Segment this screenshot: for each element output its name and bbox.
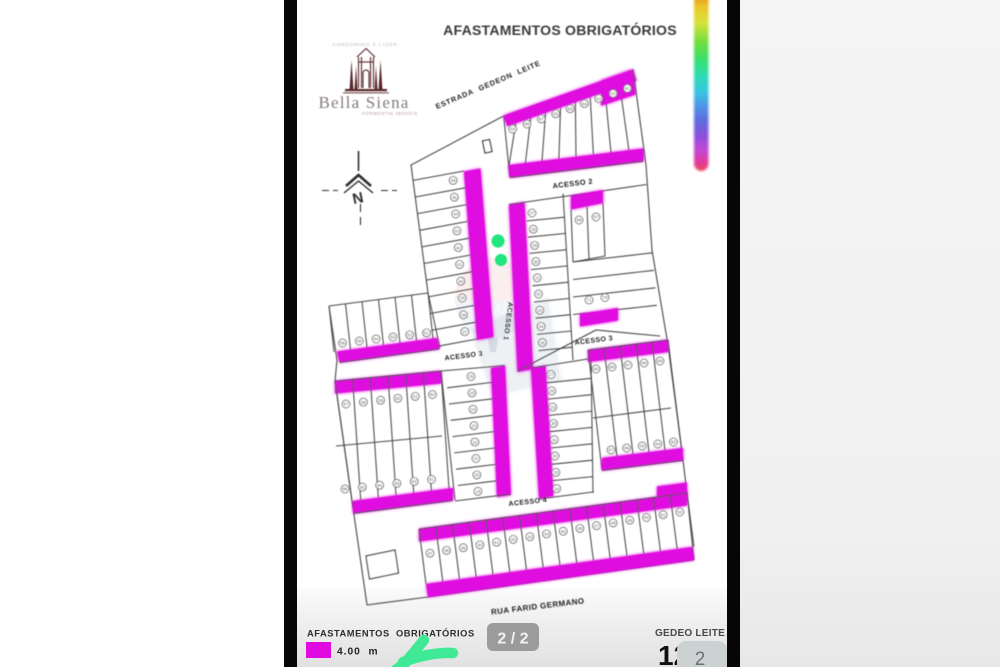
svg-text:45: 45 xyxy=(452,195,457,200)
svg-text:34: 34 xyxy=(554,486,559,491)
svg-text:27: 27 xyxy=(530,211,535,216)
svg-text:30: 30 xyxy=(533,259,538,264)
svg-text:46: 46 xyxy=(577,526,582,531)
svg-text:69: 69 xyxy=(658,359,663,364)
svg-text:62: 62 xyxy=(430,392,435,397)
svg-text:44: 44 xyxy=(544,532,549,537)
svg-text:41: 41 xyxy=(494,540,499,545)
svg-text:43: 43 xyxy=(527,534,532,539)
svg-text:52: 52 xyxy=(407,333,412,338)
svg-text:39: 39 xyxy=(460,296,465,301)
svg-text:67: 67 xyxy=(626,363,631,368)
svg-text:20: 20 xyxy=(474,473,479,478)
svg-text:71: 71 xyxy=(587,298,592,303)
svg-text:28: 28 xyxy=(549,389,554,394)
svg-text:AFASTAMENTOS OBRIGATÓRIOS: AFASTAMENTOS OBRIGATÓRIOS xyxy=(443,21,677,38)
svg-text:64: 64 xyxy=(582,101,587,106)
svg-text:Bella Siena: Bella Siena xyxy=(318,93,409,112)
svg-text:30: 30 xyxy=(551,421,556,426)
svg-text:61: 61 xyxy=(413,394,418,399)
svg-text:66: 66 xyxy=(624,446,629,451)
svg-text:50: 50 xyxy=(644,515,649,520)
svg-text:26: 26 xyxy=(469,374,474,379)
svg-text:44: 44 xyxy=(453,212,458,217)
svg-text:FORMENTIN IMÓVEIS: FORMENTIN IMÓVEIS xyxy=(362,111,418,116)
svg-text:29: 29 xyxy=(532,243,537,248)
svg-text:23: 23 xyxy=(472,423,477,428)
svg-text:95: 95 xyxy=(360,485,365,490)
svg-text:39: 39 xyxy=(461,545,466,550)
svg-text:66: 66 xyxy=(610,365,615,370)
svg-text:70: 70 xyxy=(603,295,608,300)
svg-text:69: 69 xyxy=(510,127,515,132)
svg-text:56: 56 xyxy=(340,341,345,346)
svg-text:38: 38 xyxy=(461,313,466,318)
svg-text:47: 47 xyxy=(594,523,599,528)
svg-text:21: 21 xyxy=(473,456,478,461)
svg-text:46: 46 xyxy=(451,178,456,183)
svg-text:AFASTAMENTOS OBRIGATÓRIOS: AFASTAMENTOS OBRIGATÓRIOS xyxy=(307,628,475,639)
svg-text:45: 45 xyxy=(561,529,566,534)
svg-text:29: 29 xyxy=(550,405,555,410)
svg-text:19: 19 xyxy=(475,489,480,494)
svg-text:94: 94 xyxy=(377,483,382,488)
svg-text:96: 96 xyxy=(343,487,348,492)
svg-text:40: 40 xyxy=(458,279,463,284)
svg-text:53: 53 xyxy=(390,335,395,340)
svg-text:33: 33 xyxy=(553,470,558,475)
svg-text:51: 51 xyxy=(661,512,666,517)
svg-text:42: 42 xyxy=(456,245,461,250)
svg-text:49: 49 xyxy=(627,518,632,523)
svg-text:41: 41 xyxy=(457,262,462,267)
svg-text:31: 31 xyxy=(535,276,540,281)
svg-text:54: 54 xyxy=(374,337,379,342)
svg-text:64: 64 xyxy=(655,442,660,447)
svg-text:93: 93 xyxy=(394,481,399,486)
svg-text:24: 24 xyxy=(471,407,476,412)
svg-text:57: 57 xyxy=(594,215,599,220)
svg-text:61: 61 xyxy=(625,86,630,91)
svg-text:32: 32 xyxy=(553,454,558,459)
svg-text:55: 55 xyxy=(357,339,362,344)
svg-text:37: 37 xyxy=(428,551,433,556)
svg-text:66: 66 xyxy=(553,112,558,117)
svg-text:63: 63 xyxy=(671,440,676,445)
svg-text:27: 27 xyxy=(549,372,554,377)
svg-text:67: 67 xyxy=(539,117,544,122)
svg-text:4.00 m: 4.00 m xyxy=(337,647,379,658)
svg-text:33: 33 xyxy=(537,308,542,313)
svg-text:32: 32 xyxy=(536,292,541,297)
svg-text:37: 37 xyxy=(462,329,467,334)
svg-text:51: 51 xyxy=(424,331,429,336)
svg-text:31: 31 xyxy=(552,437,557,442)
svg-text:GEDEO LEITE: GEDEO LEITE xyxy=(655,628,725,639)
svg-text:91: 91 xyxy=(429,477,434,482)
svg-text:68: 68 xyxy=(642,361,647,366)
svg-text:52: 52 xyxy=(677,510,682,515)
svg-text:58: 58 xyxy=(361,400,366,405)
svg-text:67: 67 xyxy=(609,448,614,453)
svg-text:34: 34 xyxy=(539,324,544,329)
svg-text:40: 40 xyxy=(477,543,482,548)
svg-text:43: 43 xyxy=(455,229,460,234)
svg-text:92: 92 xyxy=(412,479,417,484)
svg-text:2: 2 xyxy=(695,649,706,667)
svg-text:35: 35 xyxy=(540,340,545,345)
svg-text:57: 57 xyxy=(344,402,349,407)
svg-text:60: 60 xyxy=(395,396,400,401)
svg-text:62: 62 xyxy=(611,91,616,96)
svg-text:58: 58 xyxy=(577,218,582,223)
svg-text:25: 25 xyxy=(470,391,475,396)
svg-text:59: 59 xyxy=(378,398,383,403)
svg-text:22: 22 xyxy=(472,440,477,445)
svg-text:2 / 2: 2 / 2 xyxy=(497,631,528,648)
svg-text:48: 48 xyxy=(611,521,616,526)
svg-text:65: 65 xyxy=(640,444,645,449)
svg-text:42: 42 xyxy=(511,537,516,542)
svg-text:38: 38 xyxy=(444,548,449,553)
svg-text:CONDOMÍNIO E LAZER: CONDOMÍNIO E LAZER xyxy=(332,41,397,47)
svg-text:63: 63 xyxy=(596,96,601,101)
svg-text:28: 28 xyxy=(531,227,536,232)
svg-text:65: 65 xyxy=(594,367,599,372)
svg-text:68: 68 xyxy=(525,122,530,127)
svg-text:65: 65 xyxy=(568,106,573,111)
